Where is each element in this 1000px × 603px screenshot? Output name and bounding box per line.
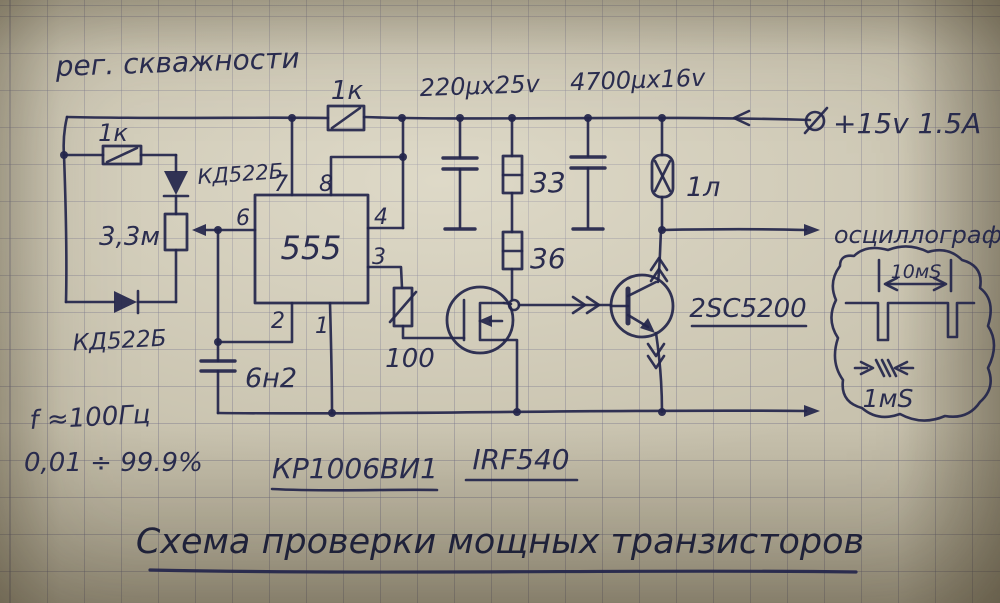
resistor-33-symbol (503, 118, 522, 232)
capacitor-4700u-symbol (571, 118, 605, 229)
wiper-arrow-icon (192, 224, 206, 236)
supply-label: +15v 1.5A (833, 107, 981, 140)
capacitor-220u-symbol (443, 118, 477, 229)
collector-lead (628, 282, 656, 296)
scope-pulse-label: 1мS (863, 384, 914, 413)
duty-cycle-note: рег. скважности (54, 41, 300, 83)
resistor-1k-top-symbol (328, 106, 364, 130)
capacitor-4700u-label: 4700μx16v (570, 64, 707, 97)
duty-range-note: 0,01 ÷ 99.9% (24, 448, 203, 478)
lamp-branch (652, 118, 673, 230)
arrow-right-icon (804, 224, 820, 236)
trimmer-100-symbol (390, 288, 464, 338)
pin3-label: 3 (372, 245, 386, 270)
source-lead (504, 340, 517, 412)
capacitor-6n2-label: 6н2 (245, 363, 297, 394)
resistor-1k-top-label: 1к (331, 76, 364, 106)
pin1-wire (330, 303, 332, 413)
photo-of-hand-drawn-schematic: рег. скважности 1к 1к КД522Б 3,3м КД522Б… (0, 0, 1000, 603)
diode-bottom-symbol (114, 291, 137, 313)
pin2-label: 2 (271, 309, 285, 334)
bjt-2sc5200-symbol (611, 231, 673, 412)
pin4-label: 4 (374, 205, 388, 230)
lamp-label: 1л (686, 172, 720, 203)
schematic-title: Схема проверки мощных транзисторов (136, 522, 864, 562)
junction-dots (60, 114, 666, 417)
pin1-label: 1 (315, 314, 329, 339)
diode-bottom-label: КД522Б (72, 326, 167, 357)
capacitor-220u-label: 220μx25v (419, 70, 541, 102)
pin3-wire (368, 267, 402, 288)
base-drive-wire (519, 297, 611, 313)
pulse-waveform (846, 303, 974, 340)
potentiometer-label: 3,3м (99, 222, 160, 252)
freq-note: f ≈100Гц (29, 400, 151, 436)
bjt-part-label: 2SC5200 (689, 294, 806, 324)
mosfet-part-label: IRF540 (472, 443, 569, 476)
diode-top-symbol (164, 171, 188, 195)
arrow-right-icon (804, 405, 820, 417)
scope-period-label: 10мS (891, 261, 942, 283)
diode-top-label: КД522Б (197, 159, 284, 189)
emitter-arrow-icon (640, 318, 655, 333)
mosfet-irf540-symbol (447, 287, 519, 412)
emitter-direction-arrow-icon (648, 344, 664, 356)
pin7-label: 7 (274, 172, 288, 197)
schematic-drawing: рег. скважности 1к 1к КД522Б 3,3м КД522Б… (0, 0, 1000, 603)
ground-rail (218, 411, 806, 414)
emitter-direction-arrow-icon (648, 356, 664, 368)
top-supply-rail (64, 108, 827, 155)
resistor-36-label: 36 (530, 242, 566, 275)
resistor-36-symbol (503, 232, 522, 300)
resistor-1k-left-label: 1к (98, 119, 128, 147)
capacitor-6n2-symbol (201, 342, 235, 413)
scope-label: осциллограф (834, 221, 1000, 249)
resistor-33-label: 33 (530, 166, 566, 199)
ic-part-label: КР1006ВИ1 (272, 452, 438, 485)
ic-marking: 555 (280, 229, 341, 267)
pin8-wire (331, 157, 403, 195)
trimmer-100-label: 100 (385, 344, 435, 374)
potentiometer-3m3-symbol (165, 214, 187, 250)
pin8-label: 8 (319, 172, 333, 197)
pin6-label: 6 (236, 206, 250, 231)
